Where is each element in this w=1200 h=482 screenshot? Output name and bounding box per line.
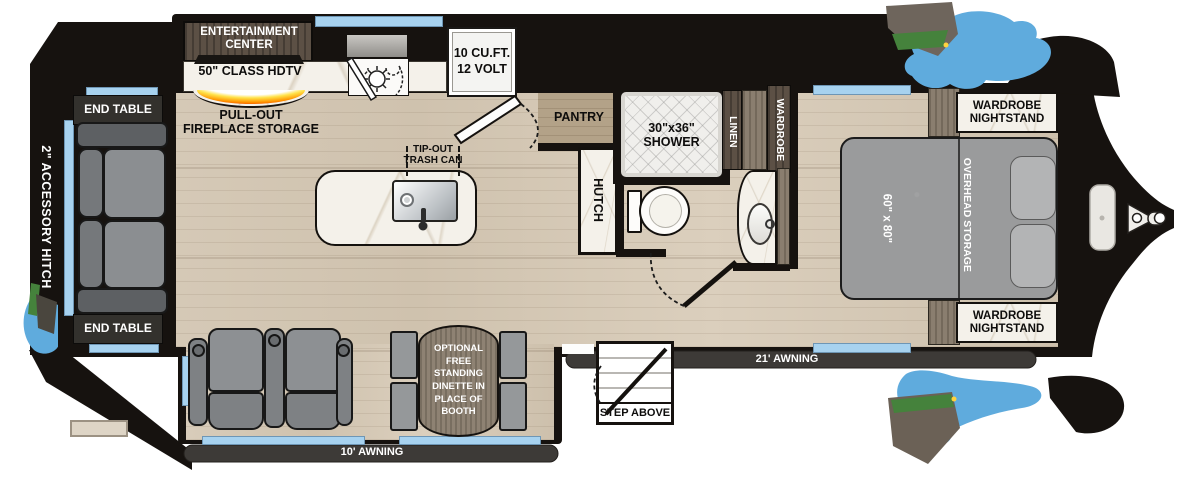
bath-wardrobe-label: WARDROBE bbox=[773, 88, 785, 172]
bath-door-arc bbox=[651, 251, 684, 306]
tv-label: 50" CLASS HDTV bbox=[192, 64, 308, 78]
hutch-label: HUTCH bbox=[591, 150, 605, 250]
step-diagonal bbox=[606, 349, 666, 414]
fridge-door-arc bbox=[521, 104, 538, 148]
accessory-hitch-label: 2" ACCESSORY HITCH bbox=[39, 132, 53, 302]
travel-trailer-floorplan: END TABLE END TABLE 10 CU.FT. 12 VOLT 30… bbox=[0, 0, 1200, 482]
awning-rear-label: 10' AWNING bbox=[327, 446, 417, 458]
faucet-icon bbox=[419, 208, 428, 231]
fireplace-label: PULL-OUT FIREPLACE STORAGE bbox=[183, 108, 319, 136]
overhead-storage-label: OVERHEAD STORAGE bbox=[960, 153, 972, 277]
entry-door-arc bbox=[594, 366, 601, 404]
vanity-faucet-icon bbox=[766, 220, 774, 228]
bed-size-label: 60" x 80" bbox=[880, 178, 893, 258]
trash-label: TIP-OUT TRASH CAN bbox=[401, 144, 465, 166]
entertainment-label: ENTERTAINMENT CENTER bbox=[186, 26, 312, 52]
pantry-label: PANTRY bbox=[543, 110, 615, 124]
awning-front-label: 21' AWNING bbox=[740, 353, 834, 365]
bath-door bbox=[684, 262, 736, 306]
hitch-coupler-icon bbox=[1128, 204, 1166, 233]
propane-tank bbox=[1090, 185, 1115, 250]
fridge-door bbox=[455, 96, 521, 143]
linen-label: LINEN bbox=[726, 97, 738, 167]
